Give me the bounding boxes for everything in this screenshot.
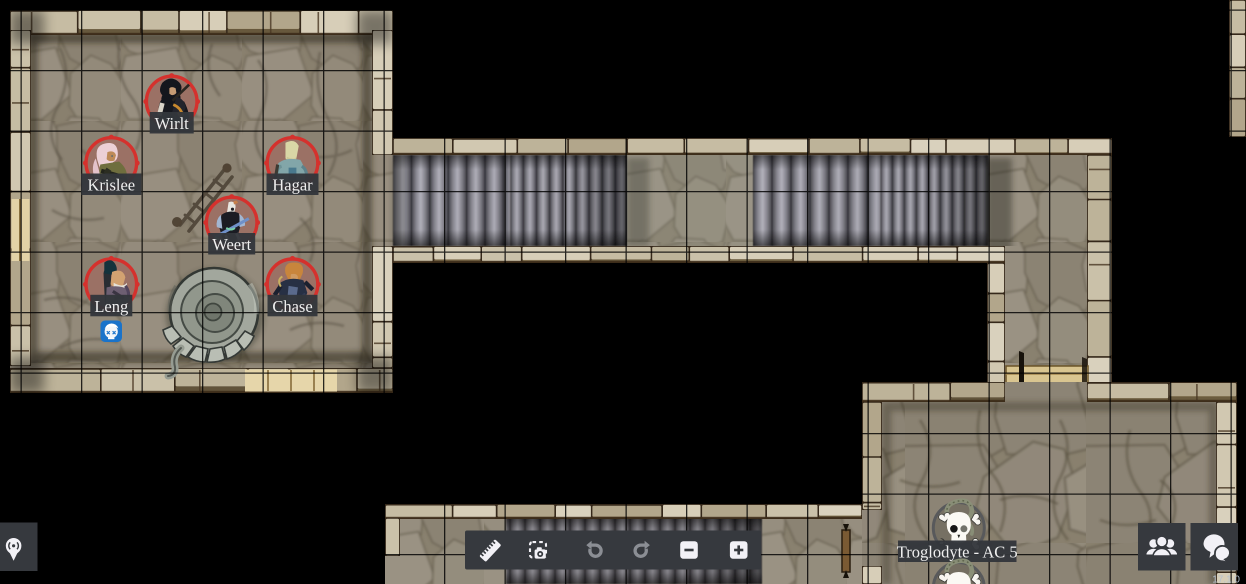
- svg-text:Wirlt: Wirlt: [155, 114, 190, 133]
- svg-text:Leng: Leng: [94, 297, 128, 316]
- svg-text:Troglodyte - AC 5: Troglodyte - AC 5: [897, 543, 1018, 562]
- svg-text:Krislee: Krislee: [87, 176, 135, 195]
- svg-text:17.1.0: 17.1.0: [1212, 575, 1240, 584]
- svg-text:Chase: Chase: [272, 297, 312, 316]
- svg-text:Weert: Weert: [212, 235, 251, 254]
- svg-text:Hagar: Hagar: [272, 176, 313, 195]
